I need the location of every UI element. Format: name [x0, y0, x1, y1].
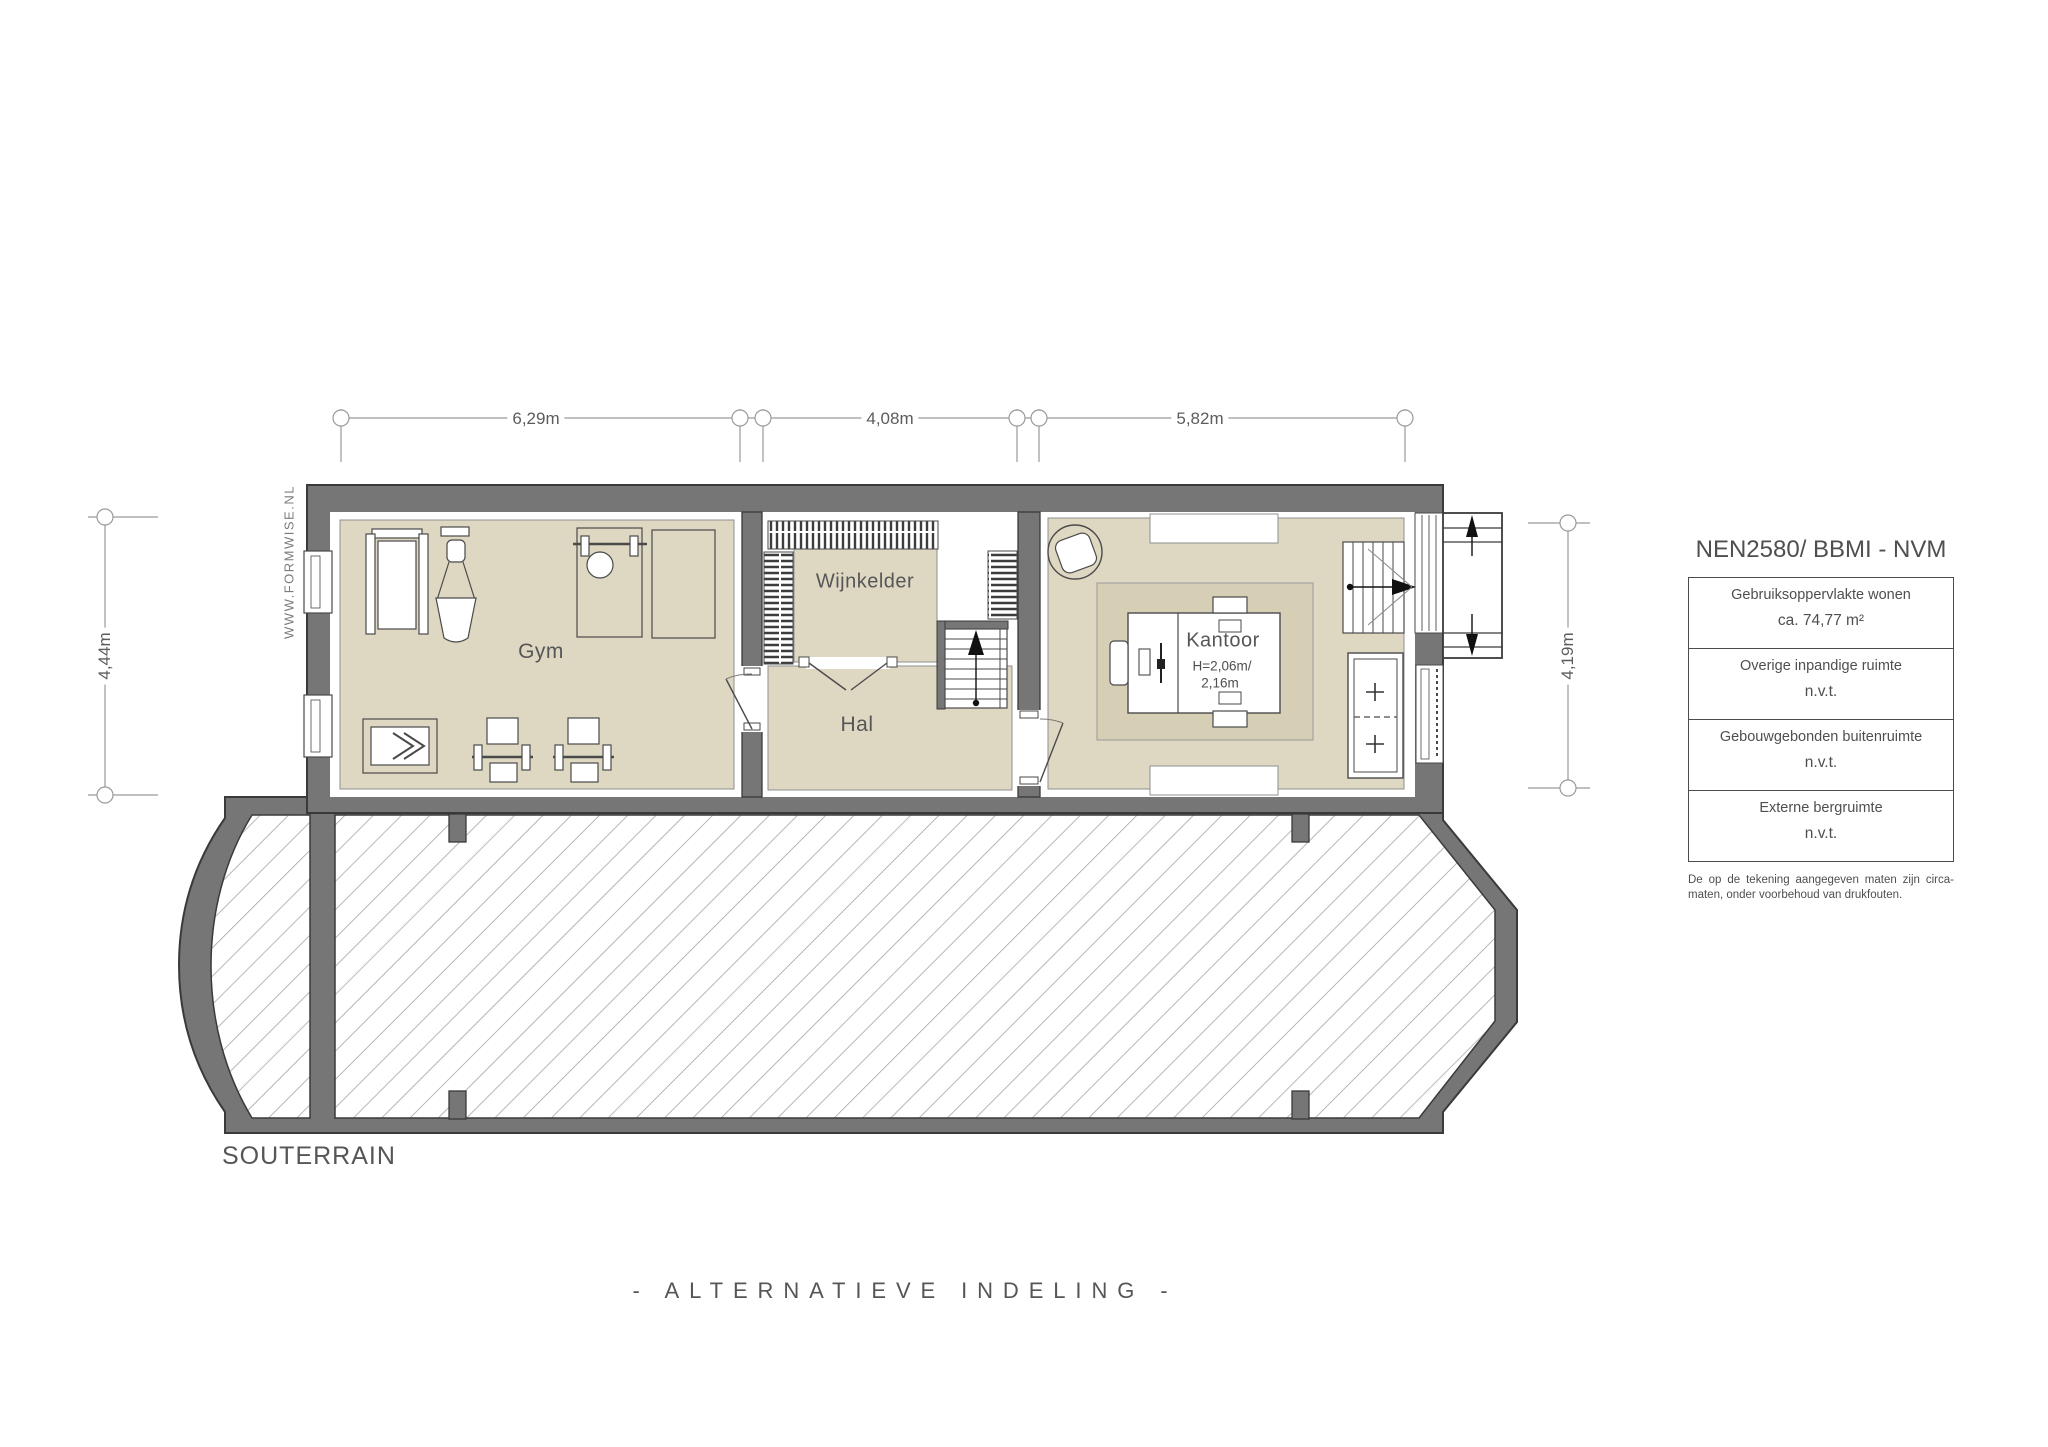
room-label-kantoor: Kantoor: [1186, 630, 1260, 653]
window-left-upper: [304, 551, 332, 613]
desk-chair-bottom: [1213, 711, 1247, 727]
desk-chair-left: [1110, 641, 1128, 685]
window-left-lower: [304, 695, 332, 757]
wine-rack-top: [768, 521, 938, 549]
legend-row-value: n.v.t.: [1689, 816, 1953, 843]
treadmill: [366, 529, 428, 634]
legend-row: Overige inpandige ruimte n.v.t.: [1689, 649, 1953, 720]
legend-row: Gebouwgebonden buitenruimte n.v.t.: [1689, 720, 1953, 791]
footer-title: - ALTERNATIEVE INDELING -: [633, 1278, 1178, 1304]
wine-rack-left: [764, 552, 793, 664]
legend-row-label: Overige inpandige ruimte: [1689, 649, 1953, 674]
floorplan-page: 6,29m 4,08m 5,82m 4,44m 4,19m WWW.FORMWI…: [0, 0, 2048, 1447]
kantoor-niche-bottom: [1150, 766, 1278, 795]
exterior-entry-stairs: [1443, 513, 1502, 658]
wijnkelder-floor: [794, 548, 937, 662]
dimension-label-top-1: 6,29m: [507, 409, 564, 429]
window-right: [1416, 665, 1443, 763]
desk-chair-top: [1213, 597, 1247, 613]
hal-staircase: [937, 621, 1008, 709]
legend-panel: NEN2580/ BBMI - NVM Gebruiksoppervlakte …: [1688, 536, 1954, 903]
entry-door-right: [1415, 513, 1443, 633]
monitor: [1139, 649, 1150, 675]
legend-row-value: n.v.t.: [1689, 745, 1953, 772]
legend-title: NEN2580/ BBMI - NVM: [1688, 536, 1954, 564]
kantoor-niche-top: [1150, 514, 1278, 543]
legend-row-value: n.v.t.: [1689, 674, 1953, 701]
floor-label: SOUTERRAIN: [222, 1142, 396, 1171]
legend-row-label: Gebruiksoppervlakte wonen: [1689, 578, 1953, 603]
legend-row: Externe bergruimte n.v.t.: [1689, 791, 1953, 861]
kantoor-height-note-line1: H=2,06m/: [1193, 659, 1252, 674]
wine-rack-right: [988, 551, 1017, 619]
wall-gym-hal: [742, 512, 762, 797]
kantoor-cabinet: [1348, 653, 1403, 778]
dimension-label-right: 4,19m: [1558, 627, 1578, 684]
legend-row: Gebruiksoppervlakte wonen ca. 74,77 m²: [1689, 578, 1953, 649]
dimension-label-top-3: 5,82m: [1171, 409, 1228, 429]
room-label-hal: Hal: [840, 713, 873, 737]
souterrain-structure: [179, 797, 1517, 1133]
dimension-label-top-2: 4,08m: [861, 409, 918, 429]
legend-footnote: De op de tekening aangegeven maten zijn …: [1688, 873, 1954, 903]
souterrain-main-area: [335, 815, 1495, 1118]
legend-table: Gebruiksoppervlakte wonen ca. 74,77 m² O…: [1688, 577, 1954, 862]
legend-row-value: ca. 74,77 m²: [1689, 603, 1953, 630]
rowing-machine: [363, 719, 437, 773]
kantoor-height-note-line2: 2,16m: [1201, 676, 1239, 691]
legend-row-label: Externe bergruimte: [1689, 791, 1953, 816]
room-label-wijnkelder: Wijnkelder: [816, 571, 914, 594]
legend-row-label: Gebouwgebonden buitenruimte: [1689, 720, 1953, 745]
watermark: WWW.FORMWISE.NL: [282, 485, 297, 639]
dimension-label-left: 4,44m: [95, 627, 115, 684]
room-label-gym: Gym: [518, 640, 564, 664]
